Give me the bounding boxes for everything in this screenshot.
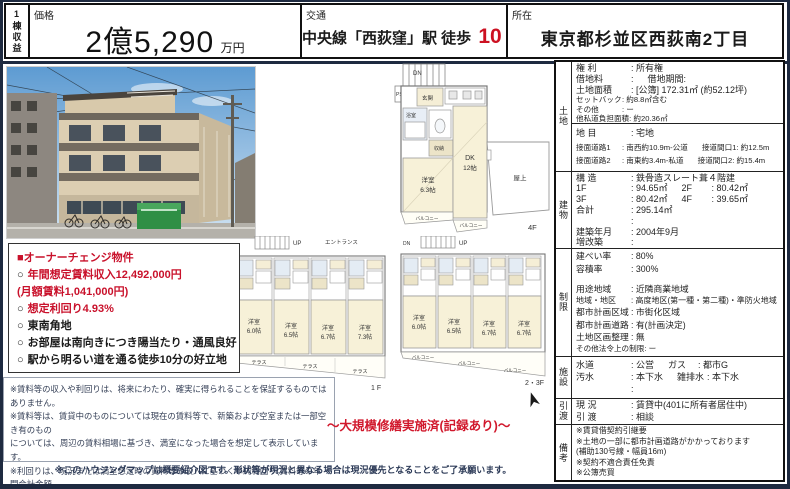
section-label-facilities: 施設 bbox=[557, 367, 570, 387]
remark-line: ※契約不適合責任免責 bbox=[576, 458, 779, 469]
detail-row: 建築年月: 2004年9月 bbox=[576, 227, 779, 238]
up-label: UP bbox=[459, 241, 467, 247]
category-badge: 1棟収益 bbox=[4, 3, 28, 59]
detail-row: 接面道路2: 南東約3.4m-私道接道間口2: 約15.4m bbox=[576, 156, 779, 165]
section-restrictions: 制限 建ぺい率: 80% 容積率: 300% 用途地域: 近隣商業地域 地域・地… bbox=[556, 248, 783, 357]
highlight-item: ○東南角地 bbox=[17, 318, 231, 335]
property-flyer: 1棟収益 価格 2億5,290 万円 交通 中央線「西荻窪」駅 徒歩 10 分 … bbox=[0, 0, 790, 489]
highlights-box: ■オーナーチェンジ物件 ○年間想定賃料収入12,492,000円 (月額賃料1,… bbox=[8, 243, 240, 373]
detail-row: 地域・地区: 高度地区(第一種・第二種)・準防火地域 bbox=[576, 296, 779, 306]
room-size: 6.3帖 bbox=[420, 185, 436, 194]
detail-row: 容積率: 300% bbox=[576, 264, 779, 275]
highlight-item: ○年間想定賃料収入12,492,000円 bbox=[17, 267, 231, 284]
entrance-label: エントランス bbox=[325, 239, 358, 246]
highlight-item: (月額賃料1,041,000円) bbox=[17, 284, 231, 301]
detail-row: 土地区画整理: 無 bbox=[576, 332, 779, 343]
category-label: 1棟収益 bbox=[11, 9, 24, 54]
detail-row: 引 渡: 相談 bbox=[576, 412, 779, 423]
detail-row: 汚水: 本下水雑排水: 本下水 bbox=[576, 372, 779, 383]
price-cell: 価格 2億5,290 万円 bbox=[28, 3, 300, 59]
location-label: 所在 bbox=[512, 7, 532, 22]
balcony-label: バルコニー bbox=[504, 368, 527, 373]
room-label: 洋室 bbox=[322, 324, 334, 332]
circle-bullet-icon: ○ bbox=[17, 269, 24, 281]
highlight-item: ○お部屋は南向きにつき陽当たり・通風良好 bbox=[17, 335, 231, 352]
storage-label: 収納 bbox=[434, 145, 444, 152]
building-photo bbox=[6, 66, 256, 239]
room-size: 7.3帖 bbox=[358, 333, 372, 341]
floorplan-4f: DN PS 玄関 浴室 収納 洋室 6.3帖 DK 12帖 bbox=[383, 62, 551, 236]
floor-label-4f: 4F bbox=[528, 223, 537, 232]
room-label: 洋室 bbox=[448, 318, 460, 326]
detail-row: 3F: 80.42㎡4F: 39.65㎡ bbox=[576, 194, 779, 205]
room-size: 6.7帖 bbox=[517, 329, 531, 337]
detail-row: その他法令上の制限: ー bbox=[576, 344, 779, 353]
room-label: 洋室 bbox=[483, 320, 495, 328]
terrace-label: テラス bbox=[353, 369, 368, 375]
floorplan-2-3f: UP DN PS 洋室 6.0帖 洋室 6.5帖 洋室 6.7帖 洋室 6.7帖… bbox=[395, 236, 551, 388]
terrace-label: テラス bbox=[303, 364, 318, 370]
room-label: 洋室 bbox=[413, 314, 425, 322]
detail-row: その他: ー bbox=[576, 105, 779, 114]
detail-row: 都市計画道路: 有(計画決定) bbox=[576, 320, 779, 331]
header-bar: 1棟収益 価格 2億5,290 万円 交通 中央線「西荻窪」駅 徒歩 10 分 … bbox=[4, 3, 784, 59]
detail-row: 建ぺい率: 80% bbox=[576, 251, 779, 262]
bath-label: 浴室 bbox=[406, 112, 416, 119]
left-building bbox=[7, 93, 57, 229]
remark-line: ※土地の一部に都市計画道路がかかっております bbox=[576, 437, 779, 448]
section-remarks: 備考 ※賃貸借契約引継要 ※土地の一部に都市計画道路がかかっております (補助1… bbox=[556, 424, 783, 480]
terrace-label: テラス bbox=[252, 360, 267, 366]
detail-row: 土地面積: [公簿] 172.31㎡ (約52.12坪) bbox=[576, 85, 779, 96]
floor-label-2-3f: 2・3F bbox=[525, 380, 544, 387]
dk-size: 12帖 bbox=[463, 163, 477, 172]
circle-bullet-icon: ○ bbox=[17, 303, 24, 315]
details-panel: 土地 権 利: 所有権 借地料:借地期間: 土地面積: [公簿] 172.31㎡… bbox=[554, 60, 785, 482]
highlight-title: ■オーナーチェンジ物件 bbox=[17, 250, 231, 267]
room-label: 洋室 bbox=[518, 320, 530, 328]
detail-row: 借地料:借地期間: bbox=[576, 74, 779, 85]
price-line: 2億5,290 万円 bbox=[30, 17, 300, 61]
circle-bullet-icon: ○ bbox=[17, 320, 24, 332]
access-minutes: 10 bbox=[475, 25, 504, 48]
detail-row: 接面道路1: 南西約10.9m-公道接道間口1: 約12.5m bbox=[576, 143, 779, 152]
floorplan-1f: UP エントランス PS 洋室 6.0帖 洋室 6.5帖 洋室 6.7帖 洋室 … bbox=[225, 236, 393, 394]
dk-label: DK bbox=[465, 155, 475, 162]
detail-row: 権 利: 所有権 bbox=[576, 63, 779, 74]
floor-label-1f: 1 F bbox=[371, 385, 381, 392]
section-label-remarks: 備考 bbox=[557, 443, 570, 463]
detail-row: セットバック: 約8.8㎡含む bbox=[576, 95, 779, 104]
access-line: 中央線「西荻窪」駅 徒歩 10 分 bbox=[302, 25, 506, 49]
rooftop-label: 屋上 bbox=[514, 173, 528, 182]
section-label-land: 土地 bbox=[557, 106, 570, 126]
disclaimer-line: ※賃料等の収入や利回りは、将来にわたり、確実に得られることを保証するものではあり… bbox=[10, 383, 328, 410]
up-label: UP bbox=[293, 241, 301, 247]
map-note: ※このハウジングマップは概要紹介図です。形状等が現況と異なる場合は現況優先となる… bbox=[3, 463, 563, 476]
right-houses bbox=[235, 153, 255, 223]
disclaimer-box: ※賃料等の収入や利回りは、将来にわたり、確実に得られることを保証するものではあり… bbox=[3, 377, 335, 462]
detail-row: 用途地域: 近隣商業地域 bbox=[576, 284, 779, 295]
room-size: 6.5帖 bbox=[447, 327, 461, 335]
room-label: 洋室 bbox=[248, 318, 260, 326]
room-label: 洋室 bbox=[422, 175, 436, 184]
room-size: 6.5帖 bbox=[284, 331, 298, 339]
room-size: 6.7帖 bbox=[321, 333, 335, 341]
balcony-label: バルコニー bbox=[458, 361, 481, 366]
detail-row: 地 目: 宅地 bbox=[576, 128, 779, 139]
detail-row: : bbox=[576, 384, 779, 395]
circle-bullet-icon: ○ bbox=[17, 337, 24, 349]
room-label: 洋室 bbox=[285, 322, 297, 330]
balcony-label-2: バルコニー bbox=[460, 223, 483, 228]
disclaimer-line: ※賃料等は、賃貸中のものについては現在の賃料等で、新築および空室または一部空き有… bbox=[10, 410, 328, 437]
balcony-label-1: バルコニー bbox=[416, 216, 439, 221]
balcony-label: バルコニー bbox=[412, 355, 435, 360]
renovation-note: ～大規模修繕実施済(記録あり)～ bbox=[327, 415, 537, 434]
remark-line: ※公簿売買 bbox=[576, 468, 779, 479]
room-size: 6.0帖 bbox=[247, 327, 261, 335]
detail-row: 都市計画区域: 市街化区域 bbox=[576, 307, 779, 318]
price-value: 2億5,290 bbox=[85, 26, 214, 59]
circle-bullet-icon: ○ bbox=[17, 354, 24, 366]
detail-row: 1F: 94.65㎡2F: 80.42㎡ bbox=[576, 183, 779, 194]
highlight-item: ○想定利回り4.93% bbox=[17, 301, 231, 318]
detail-row: 増改築: bbox=[576, 237, 779, 247]
access-label: 交通 bbox=[306, 7, 326, 22]
detail-row: 構 造: 鉄骨造スレート葺４階建 bbox=[576, 173, 779, 184]
location-cell: 所在 東京都杉並区西荻南2丁目 bbox=[506, 3, 784, 59]
highlight-item: ○駅から明るい道を通る徒歩10分の好立地 bbox=[17, 352, 231, 369]
dumpster bbox=[137, 203, 181, 229]
dn-label: DN bbox=[413, 71, 422, 77]
room-label: 洋室 bbox=[359, 324, 371, 332]
access-text: 中央線「西荻窪」駅 徒歩 bbox=[302, 30, 471, 47]
room-size: 6.0帖 bbox=[412, 323, 426, 331]
section-label-handover: 引渡 bbox=[557, 401, 570, 421]
price-unit: 万円 bbox=[221, 41, 245, 55]
section-building: 建物 構 造: 鉄骨造スレート葺４階建 1F: 94.65㎡2F: 80.42㎡… bbox=[556, 171, 783, 248]
detail-row: : bbox=[576, 216, 779, 227]
dn-label: DN bbox=[403, 241, 411, 247]
access-cell: 交通 中央線「西荻窪」駅 徒歩 10 分 bbox=[300, 3, 506, 59]
detail-row: 他私道負担面積: 約20.36㎡ bbox=[576, 114, 779, 123]
disclaimer-line: については、周辺の賃料相場に基づき、満室になった場合を想定して表示しています。 bbox=[10, 437, 328, 464]
room-size: 6.7帖 bbox=[482, 329, 496, 337]
detail-row: 水道: 公営ガス: 都市G bbox=[576, 360, 779, 371]
location-value: 東京都杉並区西荻南2丁目 bbox=[508, 25, 782, 50]
section-label-building: 建物 bbox=[557, 200, 570, 220]
detail-row: 現 況: 賃貸中(401に所有者居住中) bbox=[576, 400, 779, 411]
section-handover: 引渡 現 況: 賃貸中(401に所有者居住中) 引 渡: 相談 bbox=[556, 398, 783, 425]
genkan-label: 玄関 bbox=[422, 94, 434, 102]
remark-line: ※賃貸借契約引継要 bbox=[576, 426, 779, 437]
detail-row: 合計: 295.14㎡ bbox=[576, 205, 779, 216]
north-arrow-icon bbox=[525, 391, 541, 409]
section-label-restrictions: 制限 bbox=[557, 292, 570, 312]
remark-line: (補助130号線・幅員16m) bbox=[576, 447, 779, 458]
section-land: 土地 権 利: 所有権 借地料:借地期間: 土地面積: [公簿] 172.31㎡… bbox=[556, 62, 783, 171]
section-facilities: 施設 水道: 公営ガス: 都市G 汚水: 本下水雑排水: 本下水 : bbox=[556, 356, 783, 397]
